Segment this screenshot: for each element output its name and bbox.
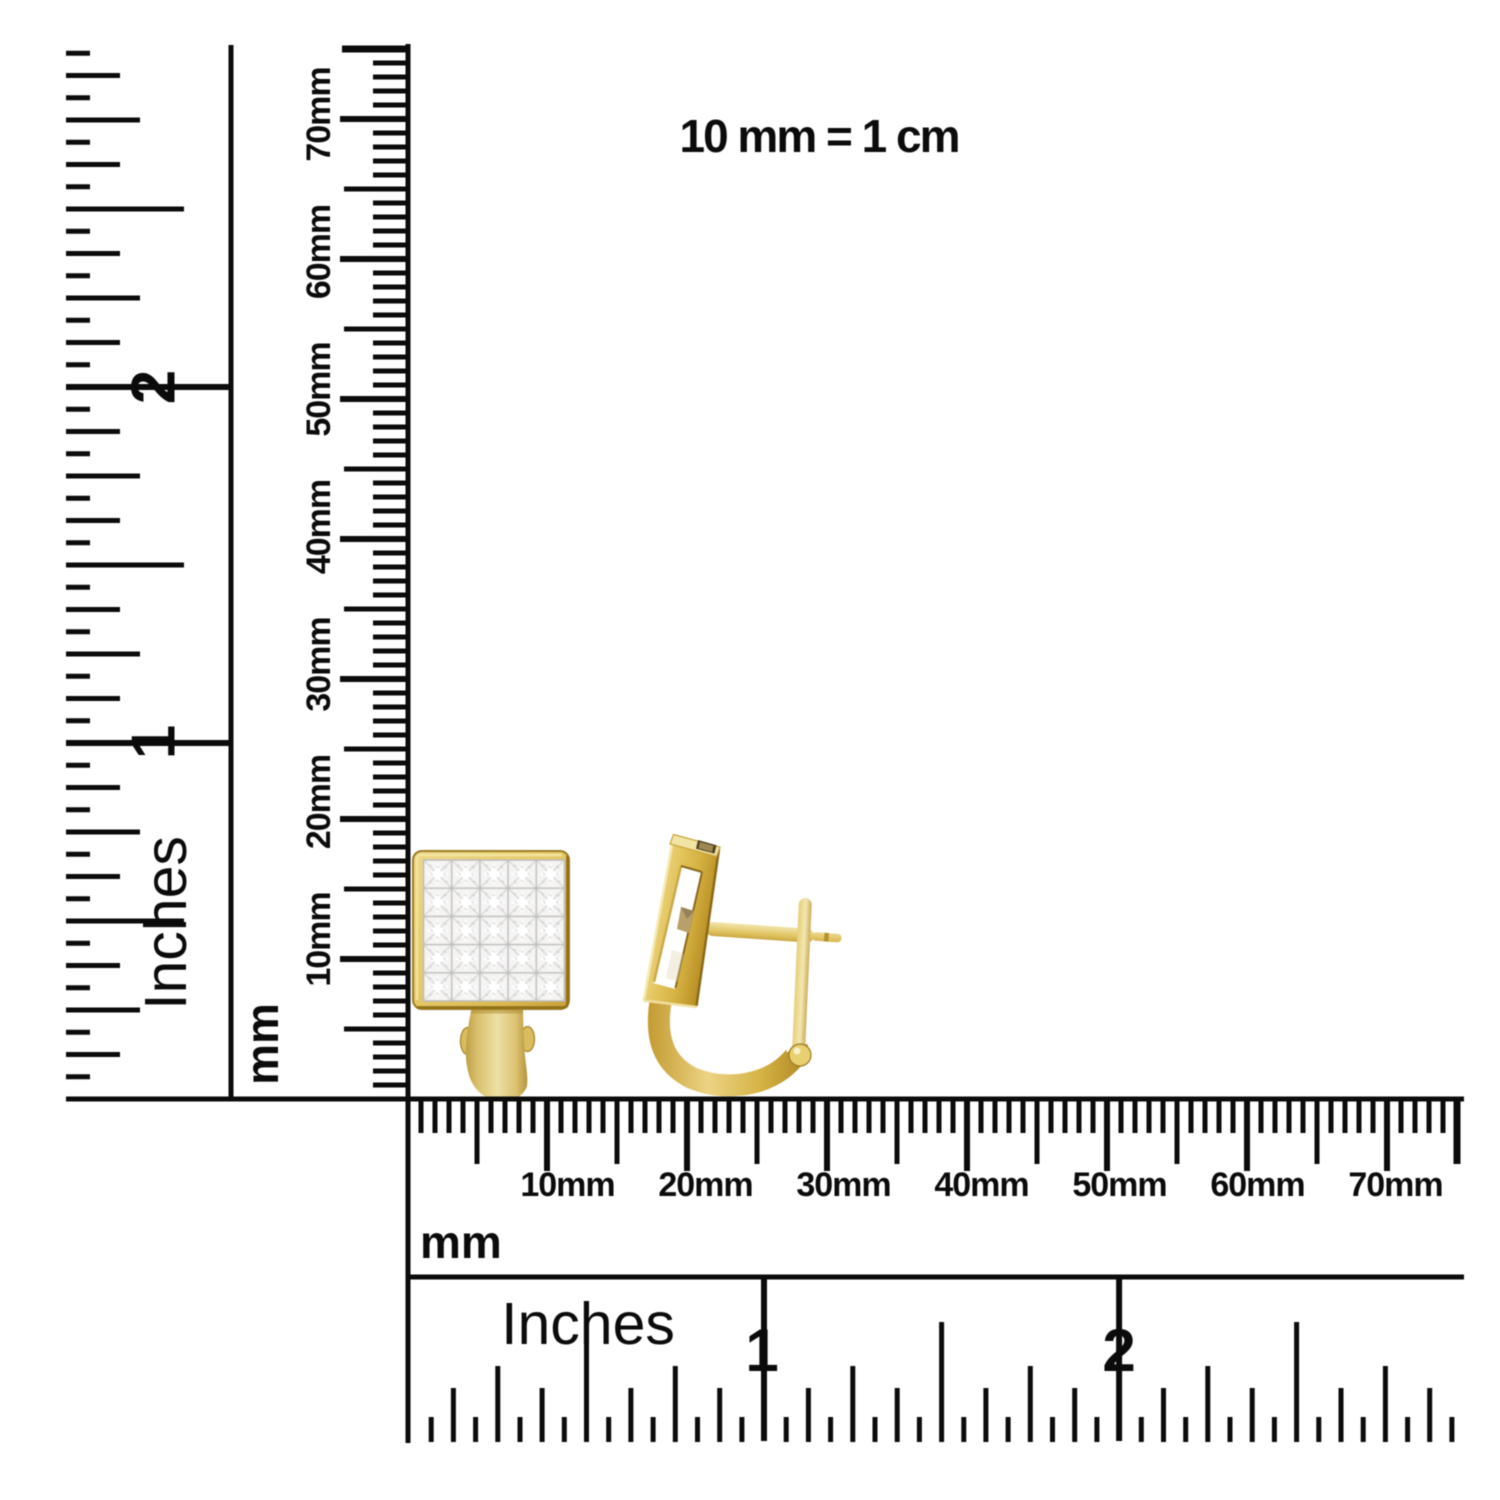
svg-text:60mm: 60mm [300, 205, 338, 299]
svg-text:10mm: 10mm [520, 1166, 614, 1204]
svg-text:30mm: 30mm [796, 1166, 890, 1204]
svg-text:70mm: 70mm [300, 67, 338, 161]
svg-text:50mm: 50mm [1072, 1166, 1166, 1204]
svg-text:mm: mm [236, 1003, 288, 1085]
svg-text:1: 1 [120, 725, 189, 759]
svg-text:20mm: 20mm [658, 1166, 752, 1204]
svg-text:2: 2 [120, 370, 189, 404]
svg-text:10 mm = 1 cm: 10 mm = 1 cm [679, 110, 958, 162]
svg-text:50mm: 50mm [300, 342, 338, 436]
svg-text:2: 2 [1102, 1317, 1135, 1384]
svg-text:10mm: 10mm [300, 892, 338, 986]
svg-text:1: 1 [745, 1317, 778, 1384]
svg-text:40mm: 40mm [300, 480, 338, 574]
svg-text:30mm: 30mm [300, 617, 338, 711]
svg-text:40mm: 40mm [934, 1166, 1028, 1204]
svg-text:70mm: 70mm [1348, 1166, 1442, 1204]
svg-text:Inches: Inches [133, 836, 199, 1010]
svg-text:60mm: 60mm [1210, 1166, 1304, 1204]
svg-text:20mm: 20mm [300, 755, 338, 849]
svg-text:mm: mm [420, 1216, 502, 1268]
svg-text:Inches: Inches [501, 1291, 675, 1357]
